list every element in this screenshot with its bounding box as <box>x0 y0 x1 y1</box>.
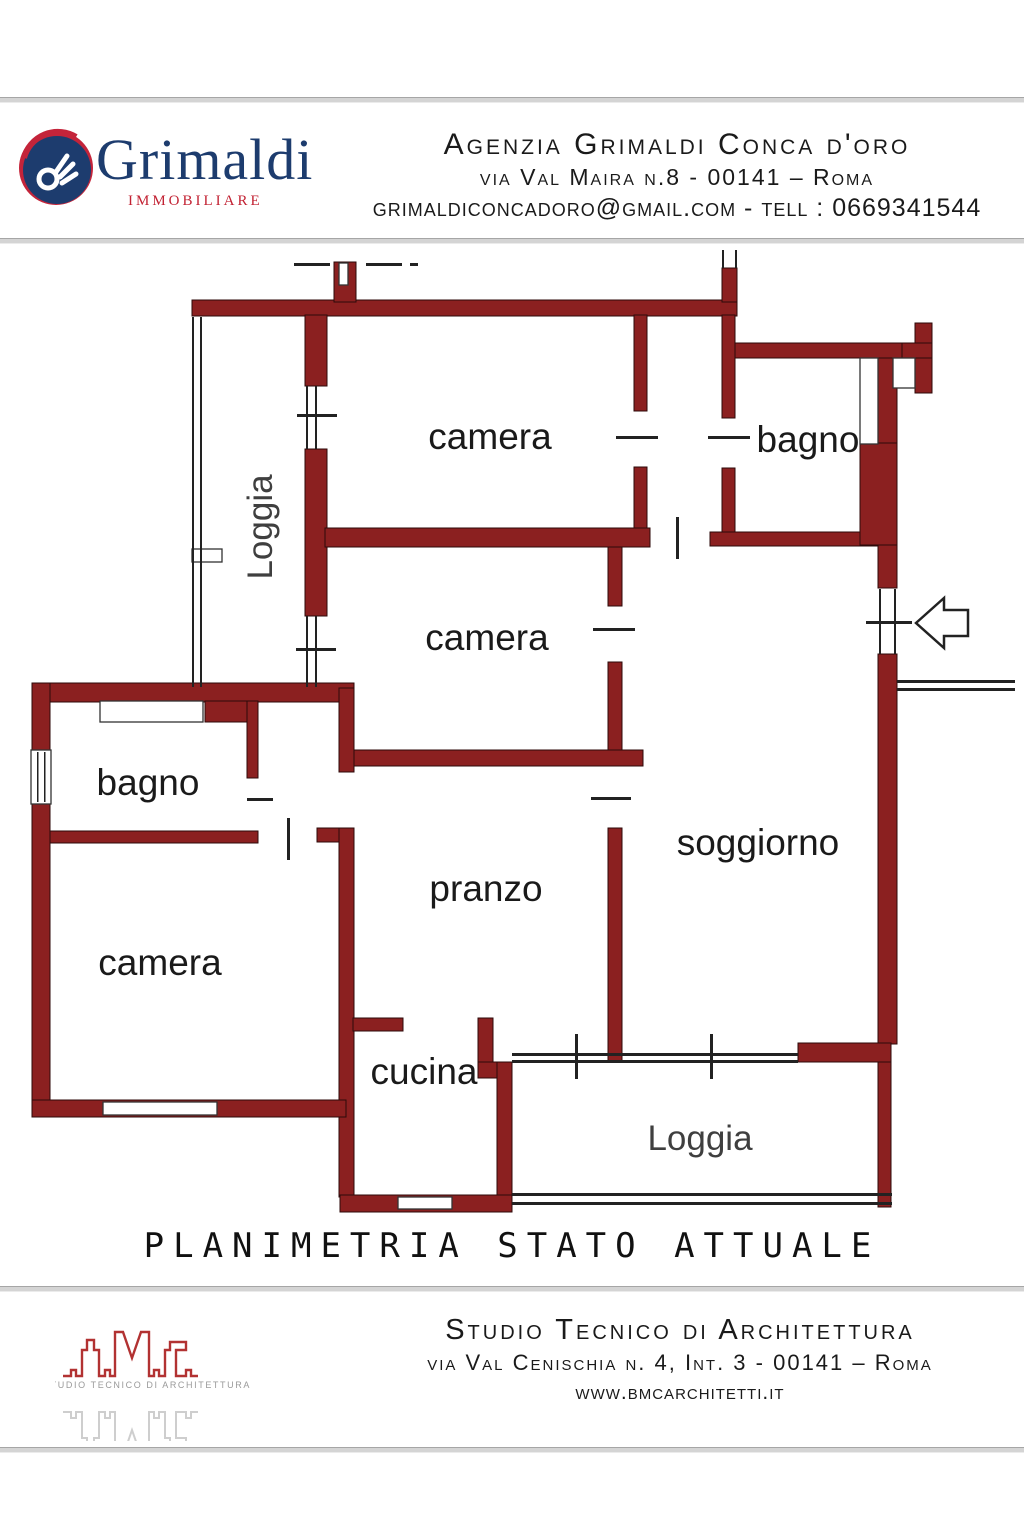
grimaldi-logo-icon <box>16 128 96 208</box>
room-label-loggia-left: Loggia <box>241 474 280 580</box>
studio-address: via Val Cenischia n. 4, Int. 3 - 00141 –… <box>360 1348 1000 1378</box>
room-label-bagno-left: bagno <box>97 762 200 803</box>
studio-name: Studio Tecnico di Architettura <box>360 1312 1000 1348</box>
agency-contact: grimaldiconcadoro@gmail.com - tell : 066… <box>330 192 1024 224</box>
bmc-logo-reflection <box>63 1412 198 1441</box>
room-label-soggiorno: soggiorno <box>677 822 840 863</box>
page: Grimaldi IMMOBILIARE Agenzia Grimaldi Co… <box>0 0 1024 1536</box>
room-label-cucina: cucina <box>371 1051 478 1092</box>
room-label-pranzo: pranzo <box>429 868 542 909</box>
bmc-logo-icon: STUDIO TECNICO DI ARCHITETTURA <box>55 1296 295 1441</box>
entrance-arrow-icon <box>916 598 968 648</box>
studio-website: www.bmcarchitetti.it <box>360 1378 1000 1408</box>
grimaldi-logo-subtitle: IMMOBILIARE <box>128 193 263 210</box>
divider-top <box>0 97 1024 103</box>
agency-name: Agenzia Grimaldi Conca d'oro <box>330 128 1024 162</box>
agency-header: Agenzia Grimaldi Conca d'oro via Val Mai… <box>330 128 1024 224</box>
room-label-camera-top: camera <box>428 416 552 457</box>
divider-footer-top <box>0 1286 1024 1292</box>
studio-footer: Studio Tecnico di Architettura via Val C… <box>360 1312 1000 1408</box>
grimaldi-logo-text: Grimaldi <box>96 126 313 193</box>
divider-footer-bottom <box>0 1447 1024 1453</box>
plan-title: PLANIMETRIA STATO ATTUALE <box>0 1226 1024 1266</box>
bmc-logo-subtext: STUDIO TECNICO DI ARCHITETTURA <box>55 1380 251 1390</box>
room-label-camera-bottom: camera <box>98 942 222 983</box>
walls <box>32 262 932 1212</box>
room-label-loggia-bottom: Loggia <box>647 1119 753 1158</box>
agency-address: via Val Maira n.8 - 00141 – Roma <box>330 162 1024 192</box>
floor-plan: camera bagno Loggia camera bagno camera … <box>0 240 1024 1225</box>
room-label-bagno-top: bagno <box>757 419 860 460</box>
room-label-camera-mid: camera <box>425 617 549 658</box>
